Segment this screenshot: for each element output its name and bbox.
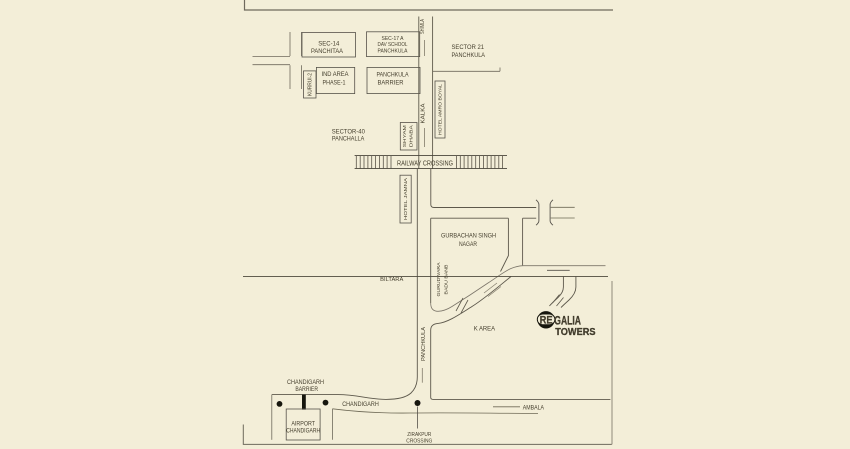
svg-text:PANCHKULA: PANCHKULA (377, 73, 409, 79)
svg-text:IND AREA: IND AREA (322, 72, 349, 78)
svg-text:CHANDIGARH: CHANDIGARH (287, 380, 324, 386)
svg-text:NAGAR: NAGAR (459, 242, 478, 248)
svg-text:SEC-17 A: SEC-17 A (382, 36, 404, 42)
svg-text:KURRUI-2: KURRUI-2 (308, 73, 314, 96)
svg-text:DHABA: DHABA (409, 124, 414, 147)
svg-text:BILTARA: BILTARA (380, 277, 404, 283)
svg-text:ZIRAKPUR: ZIRAKPUR (407, 432, 431, 438)
svg-text:PANCHKULA: PANCHKULA (452, 52, 486, 59)
svg-text:SECTOR 21: SECTOR 21 (452, 44, 485, 51)
svg-text:CHANDIGARH: CHANDIGARH (342, 401, 379, 408)
svg-text:AMBALA: AMBALA (523, 405, 544, 411)
svg-text:BARRIER: BARRIER (378, 80, 405, 86)
svg-text:PANCHALLA: PANCHALLA (332, 136, 365, 143)
svg-text:BARRIER: BARRIER (295, 387, 318, 393)
svg-text:K AREA: K AREA (474, 326, 496, 333)
svg-text:TOWERS: TOWERS (555, 327, 595, 338)
svg-text:AIRPORT: AIRPORT (291, 421, 315, 427)
svg-text:RE: RE (540, 314, 553, 326)
svg-text:SEC-14: SEC-14 (318, 42, 340, 48)
svg-text:KALKA: KALKA (421, 103, 427, 124)
svg-text:PANCHKULA: PANCHKULA (378, 49, 408, 55)
svg-text:HOTEL JAMNA: HOTEL JAMNA (403, 177, 408, 220)
svg-text:RAILWAY CROSSING: RAILWAY CROSSING (397, 161, 453, 168)
svg-text:HOTEL AMRO BOYAL: HOTEL AMRO BOYAL (438, 84, 443, 135)
svg-text:SHYAM: SHYAM (402, 125, 407, 147)
svg-text:BADU BANB: BADU BANB (444, 265, 449, 295)
svg-text:PANCHKULA: PANCHKULA (421, 326, 427, 361)
svg-text:CHANDIGARH: CHANDIGARH (286, 429, 320, 435)
svg-text:SHIMLA: SHIMLA (420, 18, 426, 34)
svg-text:PHASE-1: PHASE-1 (323, 80, 347, 86)
svg-text:SECTOR-40: SECTOR-40 (332, 128, 365, 135)
svg-text:GALIA: GALIA (554, 314, 581, 327)
svg-text:CROSSING: CROSSING (406, 438, 432, 444)
svg-text:PANCHITAA: PANCHITAA (311, 49, 343, 55)
svg-text:DAV SCHOOL: DAV SCHOOL (378, 42, 408, 48)
svg-text:GURUDWARA: GURUDWARA (436, 261, 441, 296)
svg-text:GURBACHAN SINGH: GURBACHAN SINGH (441, 234, 496, 240)
